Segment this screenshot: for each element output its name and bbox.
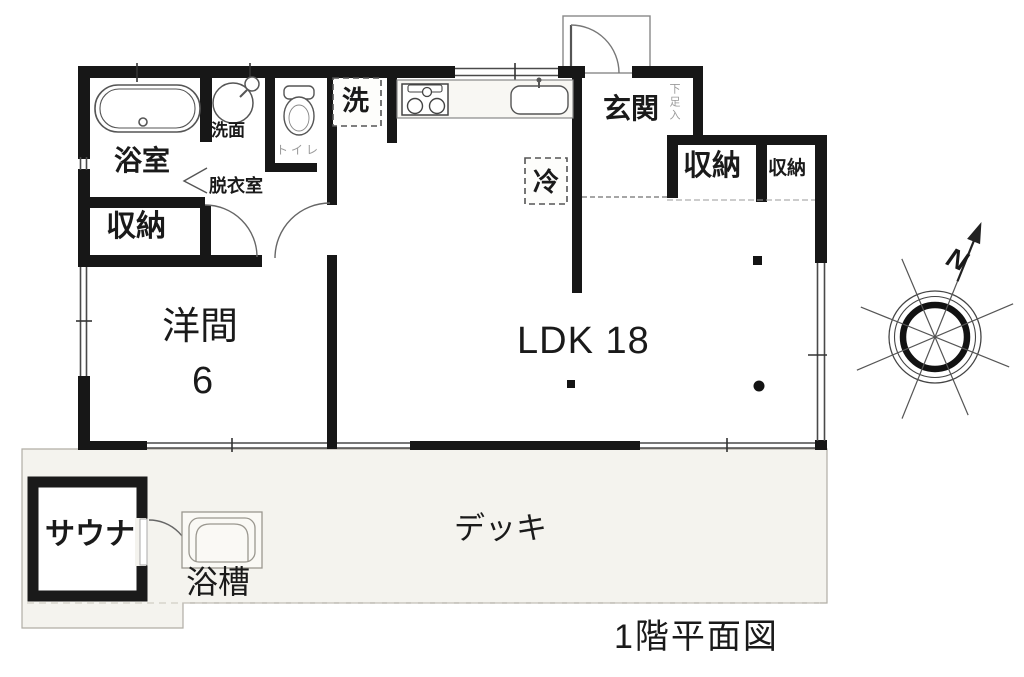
door-arc-icons bbox=[205, 203, 330, 258]
ldk-label: LDK 18 bbox=[517, 322, 650, 360]
floorplan-linework bbox=[0, 0, 1024, 677]
bathroom-label: 浴室 bbox=[114, 147, 170, 175]
washer-label: 洗 bbox=[342, 88, 369, 115]
western-room-size: 6 bbox=[192, 362, 213, 400]
storage-right-small-label: 収納 bbox=[768, 159, 806, 178]
shoe-cabinet-label: 下足入 bbox=[668, 83, 679, 139]
toilet-label: トイレ bbox=[276, 144, 321, 156]
dressing-room-label: 脱衣室 bbox=[209, 177, 263, 195]
washstand-label: 洗面 bbox=[211, 122, 245, 139]
storage-right-large-label: 収納 bbox=[683, 152, 741, 181]
outdoor-bathtub-label: 浴槽 bbox=[186, 566, 250, 598]
folding-door-icon bbox=[184, 168, 207, 193]
stove-icon bbox=[402, 84, 448, 115]
toilet-icon bbox=[284, 86, 314, 135]
outdoor-tub-icon bbox=[182, 512, 262, 568]
genkan-step-lines bbox=[582, 197, 815, 200]
bathtub-icon bbox=[95, 85, 200, 132]
plan-caption: 1階平面図 bbox=[614, 620, 779, 654]
fridge-label: 冷 bbox=[533, 169, 559, 195]
western-room-label: 洋間 bbox=[162, 308, 238, 346]
entrance-label: 玄関 bbox=[603, 95, 659, 123]
washbasin-icon bbox=[213, 77, 259, 123]
storage-left-label: 収納 bbox=[106, 212, 166, 242]
deck-label: デッキ bbox=[454, 513, 547, 544]
sauna-label: サウナ bbox=[45, 520, 135, 550]
compass-icon bbox=[828, 192, 1024, 449]
floor-plan-page: 浴室 洗面 脱衣室 トイレ 収納 収納 収納 玄関 下足入 洗 冷 洋間 6 L… bbox=[0, 0, 1024, 677]
entrance-door-icon bbox=[563, 16, 650, 73]
